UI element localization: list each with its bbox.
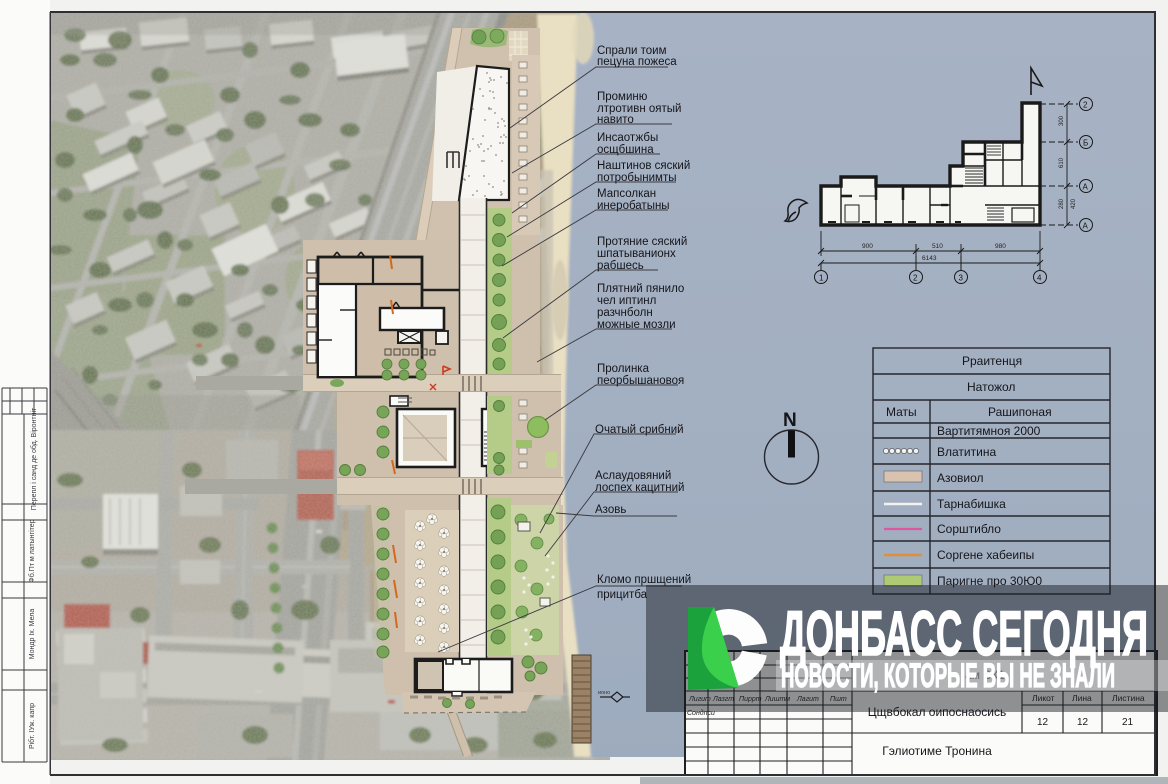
svg-text:Перепл і санд де обд. Віронтні: Перепл і санд де обд. Віронтніт xyxy=(30,407,38,510)
svg-text:Рібт. ІУж. капр: Рібт. ІУж. капр xyxy=(28,703,36,749)
svg-text:4: 4 xyxy=(1037,274,1042,283)
svg-text:12: 12 xyxy=(1077,717,1089,728)
svg-text:пеорбышановоя: пеорбышановоя xyxy=(597,375,684,387)
svg-text:Мондр Іх. Мела: Мондр Іх. Мела xyxy=(29,609,36,660)
svg-text:Мапсолкан: Мапсолкан xyxy=(597,188,656,200)
svg-text:2: 2 xyxy=(913,274,918,283)
svg-text:2: 2 xyxy=(1083,101,1088,110)
svg-text:А: А xyxy=(1083,222,1089,231)
svg-text:чел иптинл: чел иптинл xyxy=(597,295,656,307)
svg-text:потробынимты: потробынимты xyxy=(597,172,677,184)
svg-text:1: 1 xyxy=(819,274,824,283)
svg-text:Азовь: Азовь xyxy=(595,504,626,516)
svg-text:лоспех кацитний: лоспех кацитний xyxy=(595,482,684,494)
svg-text:N: N xyxy=(783,410,797,431)
svg-text:Протяние сяский: Протяние сяский xyxy=(597,236,687,248)
svg-text:можные мозли: можные мозли xyxy=(597,319,676,331)
svg-text:280: 280 xyxy=(1059,198,1065,209)
svg-text:Рашипоная: Рашипоная xyxy=(988,405,1052,419)
svg-text:Аслаудовяний: Аслаудовяний xyxy=(595,470,671,482)
svg-text:3: 3 xyxy=(959,274,964,283)
svg-text:осщбшина: осщбшина xyxy=(597,144,654,156)
svg-text:инеробатыны: инеробатыны xyxy=(597,200,670,212)
svg-text:НОВОСТИ, КОТОРЫЕ ВЫ НЕ ЗНАЛИ: НОВОСТИ, КОТОРЫЕ ВЫ НЕ ЗНАЛИ xyxy=(781,657,1115,695)
svg-text:610: 610 xyxy=(1059,157,1065,168)
svg-text:Проминю: Проминю xyxy=(597,91,648,103)
svg-text:Маты: Маты xyxy=(886,405,917,419)
svg-text:Наштинов сяский: Наштинов сяский xyxy=(597,160,690,172)
svg-text:Рраитенця: Рраитенця xyxy=(962,354,1022,368)
svg-text:Азовиол: Азовиол xyxy=(937,471,984,485)
svg-text:Б: Б xyxy=(1083,139,1088,148)
svg-text:420: 420 xyxy=(1071,198,1077,209)
svg-text:12: 12 xyxy=(1037,717,1049,728)
svg-text:300: 300 xyxy=(1059,115,1065,126)
svg-text:Соргене хабеипы: Соргене хабеипы xyxy=(937,548,1034,562)
svg-text:шпатыванионх: шпатыванионх xyxy=(597,248,676,260)
svg-text:прицитба: прицитба xyxy=(597,589,648,601)
svg-text:900: 900 xyxy=(862,243,873,250)
svg-text:А: А xyxy=(1083,183,1089,192)
svg-text:Инсаотжбы: Инсаотжбы xyxy=(597,132,658,144)
svg-text:пецуна пожеса: пецуна пожеса xyxy=(597,56,677,68)
svg-text:980: 980 xyxy=(995,243,1006,250)
svg-text:рабшесь: рабшесь xyxy=(597,260,644,272)
svg-text:Гэлиотиме Тронина: Гэлиотиме Тронина xyxy=(882,744,992,758)
svg-text:6143: 6143 xyxy=(922,255,937,262)
svg-text:21: 21 xyxy=(1122,717,1134,728)
svg-text:навито: навито xyxy=(597,114,634,126)
svg-text:Кломо пршщений: Кломо пршщений xyxy=(597,574,691,586)
svg-text:510: 510 xyxy=(932,243,943,250)
svg-text:Влатитина: Влатитина xyxy=(937,445,996,459)
svg-text:ионо: ионо xyxy=(598,690,610,696)
svg-text:Плятний пянило: Плятний пянило xyxy=(597,283,684,295)
svg-text:Сорштибло: Сорштибло xyxy=(937,522,1001,536)
svg-text:Тарнабишка: Тарнабишка xyxy=(937,497,1006,511)
svg-text:разчнболн: разчнболн xyxy=(597,307,653,319)
svg-text:Пролинка: Пролинка xyxy=(597,363,650,375)
svg-text:Натожол: Натожол xyxy=(967,380,1015,394)
svg-text:Фб.Пт м латынгітер: Фб.Пт м латынгітер xyxy=(28,519,36,582)
svg-text:Очатый срибний: Очатый срибний xyxy=(595,424,684,436)
svg-text:Вартитямноя 2000: Вартитямноя 2000 xyxy=(937,424,1041,438)
